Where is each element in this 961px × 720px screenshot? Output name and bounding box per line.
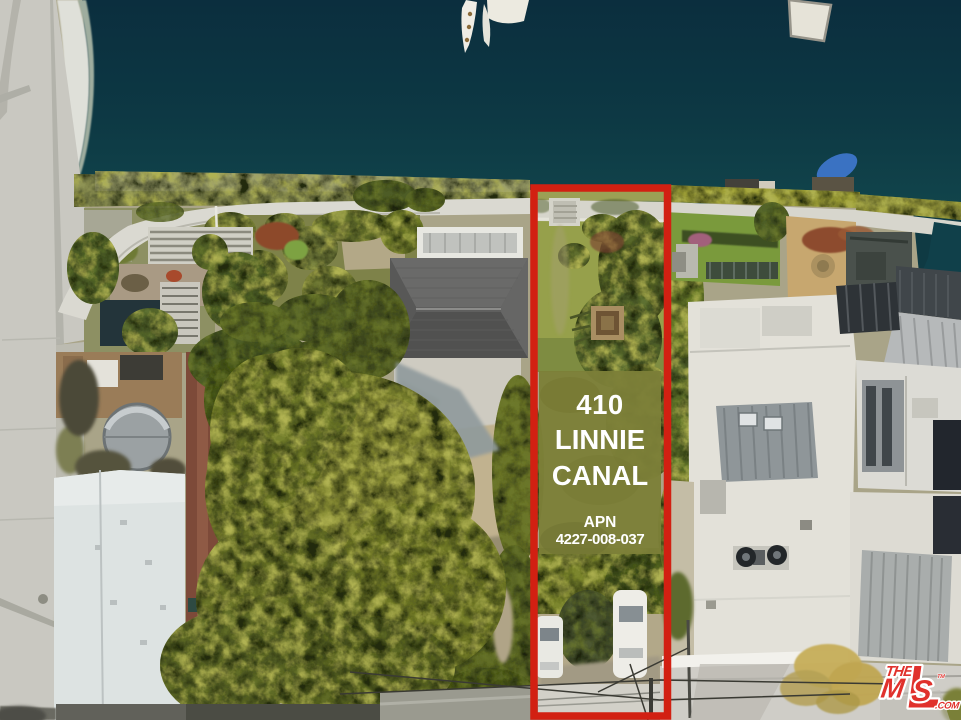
svg-text:410: 410 bbox=[576, 389, 623, 420]
svg-text:4227-008-037: 4227-008-037 bbox=[556, 531, 645, 548]
svg-text:TM: TM bbox=[936, 674, 945, 680]
svg-text:LINNIE: LINNIE bbox=[555, 424, 645, 455]
svg-text:.COM: .COM bbox=[935, 701, 961, 712]
svg-text:CANAL: CANAL bbox=[552, 460, 648, 491]
svg-text:APN: APN bbox=[584, 514, 617, 531]
